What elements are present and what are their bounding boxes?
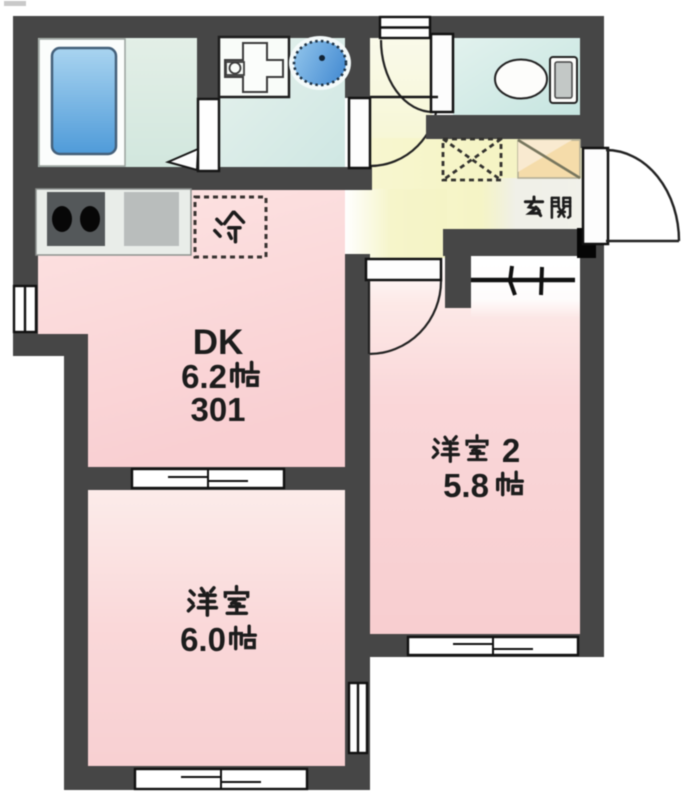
svg-text:DK: DK: [193, 323, 244, 362]
svg-text:6.2: 6.2: [181, 358, 227, 395]
svg-text:5.8: 5.8: [443, 467, 489, 504]
svg-text:6.0: 6.0: [180, 621, 226, 658]
svg-text:301: 301: [190, 391, 245, 428]
svg-text:2: 2: [502, 432, 520, 469]
